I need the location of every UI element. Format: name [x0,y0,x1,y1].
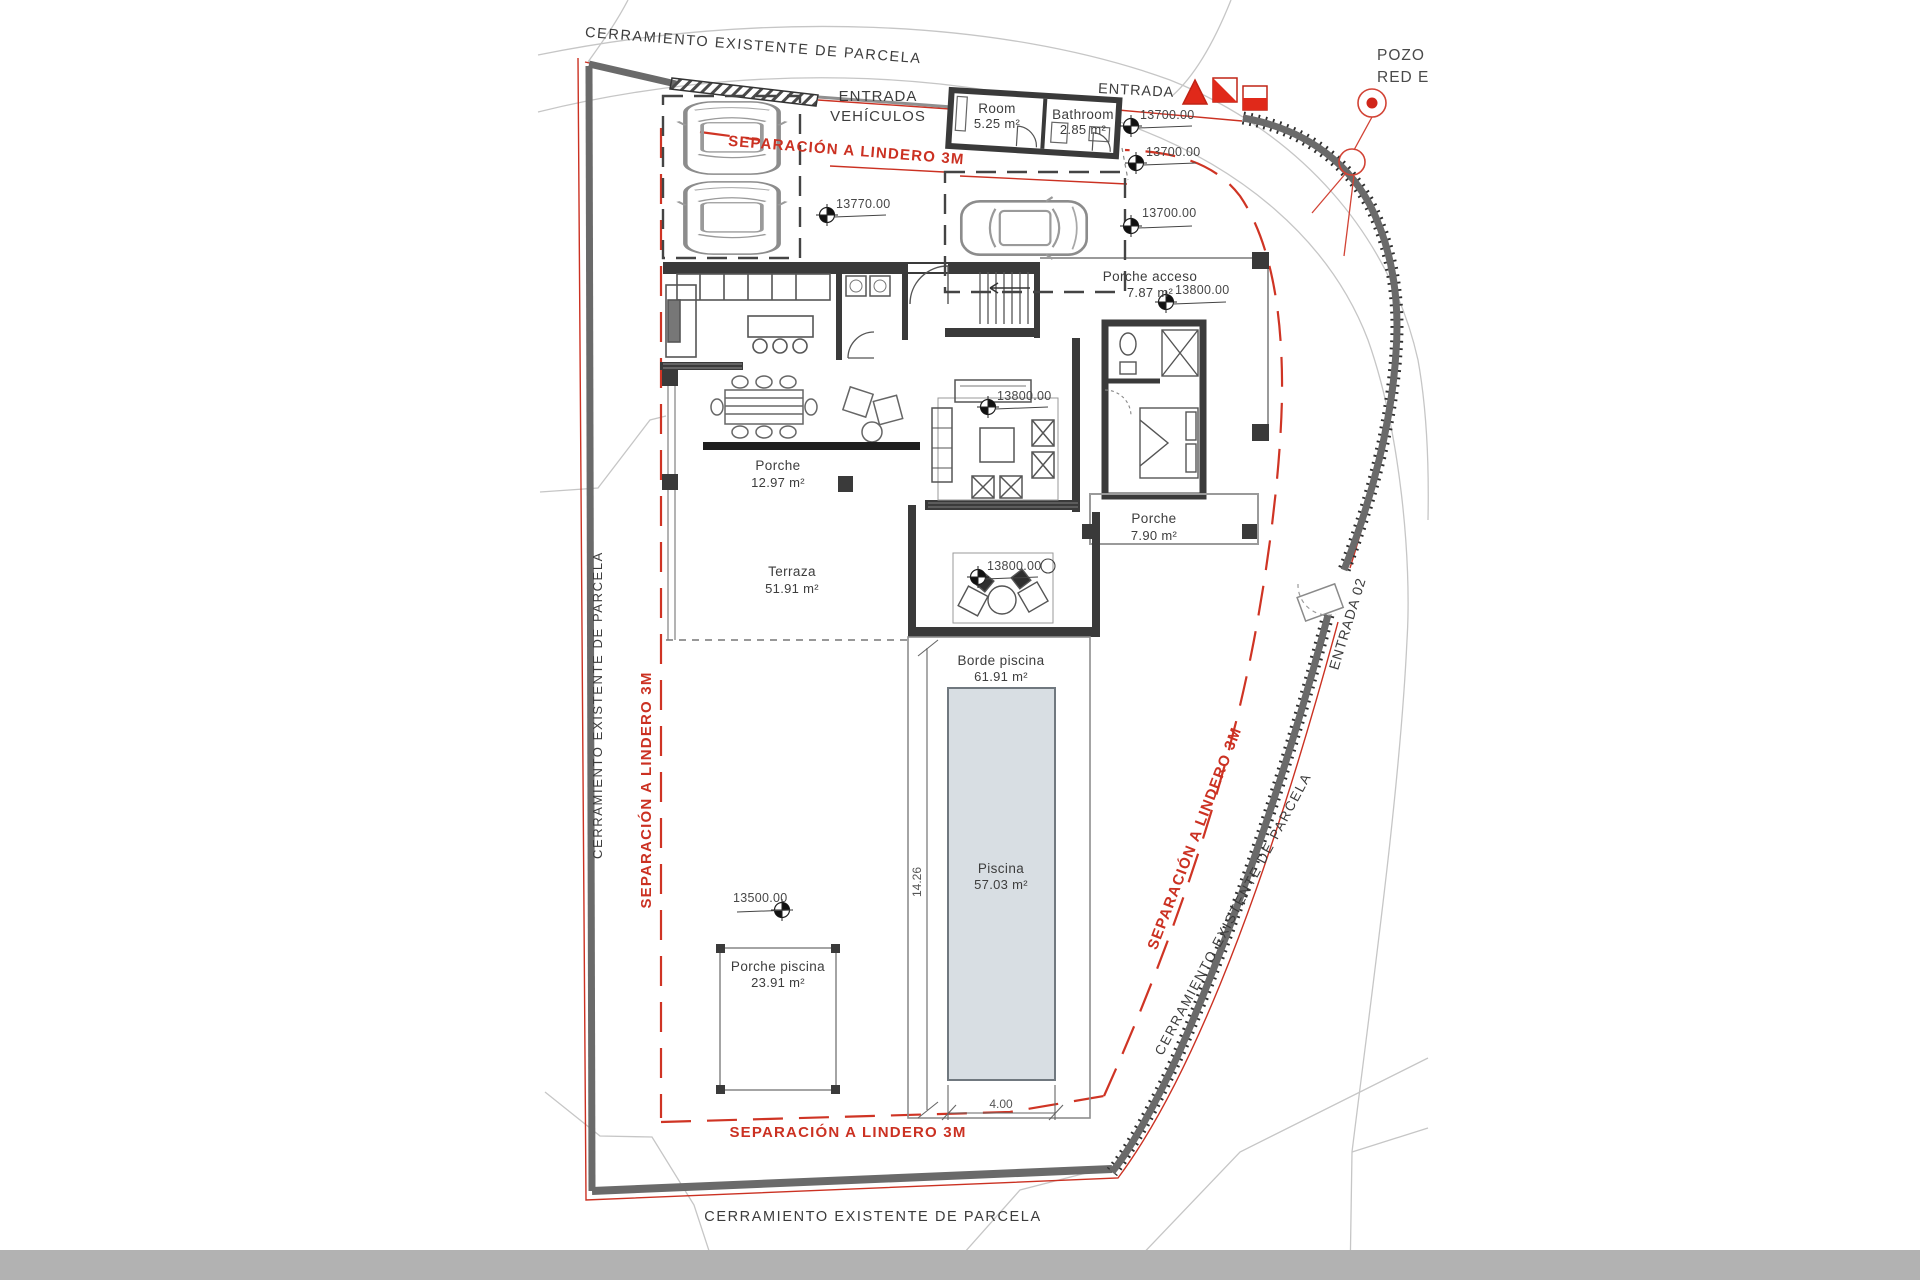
porche-west-name: Porche [755,458,800,473]
bedroom-suite [1105,323,1203,496]
level-living: 13800.00 [997,389,1052,403]
room-name: Room [978,101,1016,116]
borde-piscina-area: 61.91 m² [974,669,1028,684]
living-room [925,338,1080,512]
fence-label-bottom: CERRAMIENTO EXISTENTE DE PARCELA [704,1209,1042,1225]
legend-symbols [1183,78,1267,110]
vehicle-entrance-label-line1: ENTRADA [839,88,918,105]
legend-half-square-icon [1243,86,1267,110]
setback-label-top: SEPARACIÓN A LINDERO 3M [728,132,966,169]
setback-label-left: SEPARACIÓN A LINDERO 3M [637,671,655,908]
legend-triangle-icon [1183,80,1207,104]
level-parking: 13770.00 [836,197,891,211]
room-area: 5.25 m² [974,116,1021,131]
fence-label-top: CERRAMIENTO EXISTENTE DE PARCELA [584,25,922,67]
level-porche-acceso: 13800.00 [1175,283,1230,297]
pool-area [716,627,1100,1120]
level-terraza: 13800.00 [987,559,1042,573]
level-entrance-mid: 13700.00 [1146,145,1201,159]
well-label-line1: POZO I [1377,47,1436,64]
site-plan-drawing: CERRAMIENTO EXISTENTE DE PARCELA CERRAMI… [0,0,1920,1280]
manhole-icon [1339,149,1365,175]
car-icon [678,182,786,254]
porche-piscina-name: Porche piscina [731,959,825,974]
setback-label-bottom: SEPARACIÓN A LINDERO 3M [729,1123,966,1141]
legend-diagonal-square-icon [1213,78,1237,102]
pool-length-value: 14.26 [910,867,924,897]
car-icon [961,197,1086,259]
borde-piscina-name: Borde piscina [958,653,1045,668]
kitchen [666,274,830,357]
dining-area [711,376,903,442]
bathroom-area: 2.85 m² [1060,122,1107,137]
porche-acceso-name: Porche acceso [1103,269,1198,284]
house-plan [660,148,1269,640]
entrance-02-gate-icon [1297,584,1343,621]
level-pool-area: 13500.00 [733,891,788,905]
porche-east-name: Porche [1131,511,1176,526]
pantry [836,262,908,360]
piscina-name: Piscina [978,861,1024,876]
ground-strip [0,1250,1920,1280]
fence-label-right: CERRAMIENTO EXISTENTE DE PARCELA [1152,770,1314,1058]
terraza-area: 51.91 m² [765,581,819,596]
level-entrance-top: 13700.00 [1140,108,1195,122]
well-label-line2: RED EX [1377,69,1441,86]
fence-label-left: CERRAMIENTO EXISTENTE DE PARCELA [590,551,605,859]
porche-west-area: 12.97 m² [751,475,805,490]
porche-acceso-area: 7.87 m² [1127,285,1174,300]
porche-east-area: 7.90 m² [1131,528,1178,543]
pool-width-value: 4.00 [989,1097,1013,1111]
porche-piscina-area: 23.91 m² [751,975,805,990]
site-plan-page: CERRAMIENTO EXISTENTE DE PARCELA CERRAMI… [0,0,1920,1280]
bathroom-name: Bathroom [1052,107,1114,122]
terraza-name: Terraza [768,564,816,579]
piscina-area: 57.03 m² [974,877,1028,892]
level-entrance-low: 13700.00 [1142,206,1197,220]
vehicle-entrance-label-line2: VEHÍCULOS [830,108,926,125]
